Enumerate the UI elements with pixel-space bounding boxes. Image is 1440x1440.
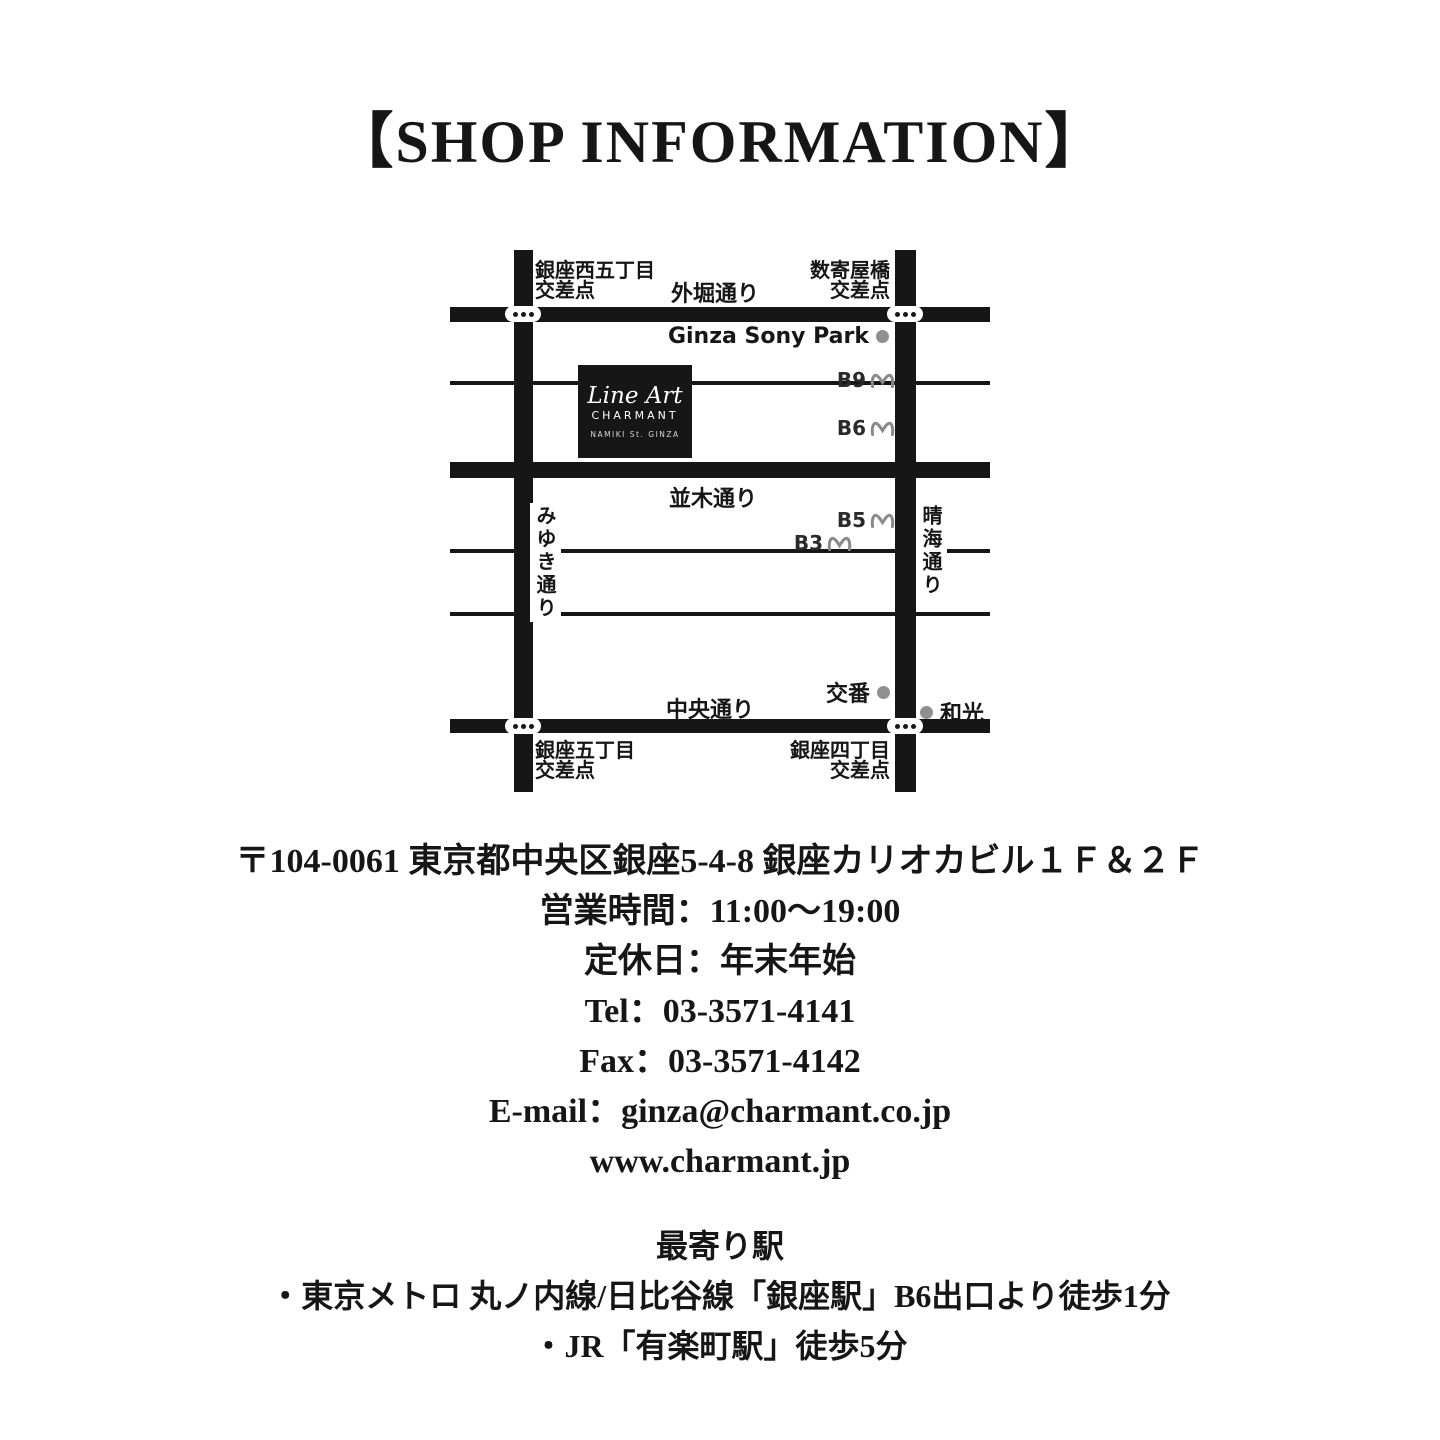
street-label-miyuki-dori: みゆき通り — [530, 503, 561, 622]
tokyo-metro-icon — [827, 535, 852, 551]
intersection-marker — [505, 718, 541, 734]
side-street-line — [450, 381, 990, 385]
nearest-stations-block: 最寄り駅 ・東京メトロ 丸ノ内線/日比谷線「銀座駅」B6出口より徒歩1分 ・JR… — [0, 1221, 1440, 1371]
landmark-ginza-sony-park: Ginza Sony Park — [668, 324, 889, 349]
brand-logo-name: CHARMANT — [591, 408, 678, 423]
map-dot-icon — [920, 706, 933, 719]
nearest-stations-heading: 最寄り駅 — [0, 1221, 1440, 1271]
metro-exit-b6: B6 — [837, 416, 895, 440]
shop-website: www.charmant.jp — [0, 1137, 1440, 1187]
street-label-namiki-dori: 並木通り — [628, 481, 798, 513]
shop-location-marker: Line Art CHARMANT NAMIKI St. GINZA — [578, 365, 692, 458]
intersection-label-sukiyabashi: 数寄屋橋 交差点 — [810, 260, 890, 300]
intersection-marker — [887, 306, 923, 322]
map-dot-icon — [876, 330, 889, 343]
shop-hours: 営業時間：11:00～19:00 — [0, 887, 1440, 937]
shop-fax: Fax：03-3571-4142 — [0, 1037, 1440, 1087]
brand-logo-sub: NAMIKI St. GINZA — [590, 430, 679, 439]
brand-logo-script: Line Art — [587, 384, 682, 408]
shop-info-block: 〒104-0061 東京都中央区銀座5-4-8 銀座カリオカビル１Ｆ＆２Ｆ 営業… — [0, 837, 1440, 1187]
station-access-metro: ・東京メトロ 丸ノ内線/日比谷線「銀座駅」B6出口より徒歩1分 — [0, 1271, 1440, 1321]
metro-exit-b3: B3 — [794, 531, 852, 555]
intersection-marker — [505, 306, 541, 322]
road-namiki-dori — [450, 462, 990, 478]
map-dot-icon — [877, 686, 890, 699]
page-title: 【SHOP INFORMATION】 — [0, 103, 1440, 181]
intersection-label-ginza-4chome: 銀座四丁目 交差点 — [790, 740, 890, 780]
road-harumi-dori — [895, 250, 916, 792]
shop-address: 〒104-0061 東京都中央区銀座5-4-8 銀座カリオカビル１Ｆ＆２Ｆ — [0, 837, 1440, 887]
street-label-harumi-dori: 晴海通り — [916, 503, 947, 599]
shop-information-page: 【SHOP INFORMATION】 銀座西五丁目 交差点 数寄屋橋 交差点 銀… — [0, 0, 1440, 1440]
landmark-koban: 交番 — [826, 676, 890, 708]
shop-email: E-mail：ginza@charmant.co.jp — [0, 1087, 1440, 1137]
street-label-sotobori-dori: 外堀通り — [630, 276, 800, 308]
street-label-chuo-dori: 中央通り — [625, 692, 795, 724]
shop-tel: Tel：03-3571-4141 — [0, 987, 1440, 1037]
station-access-jr: ・JR「有楽町駅」徒歩5分 — [0, 1321, 1440, 1371]
shop-holiday: 定休日：年末年始 — [0, 937, 1440, 987]
tokyo-metro-icon — [870, 420, 895, 436]
intersection-label-ginza-5chome: 銀座五丁目 交差点 — [535, 740, 635, 780]
tokyo-metro-icon — [870, 372, 895, 388]
ginza-access-map: 銀座西五丁目 交差点 数寄屋橋 交差点 銀座五丁目 交差点 銀座四丁目 交差点 … — [450, 250, 1010, 795]
metro-exit-b9: B9 — [837, 368, 895, 392]
tokyo-metro-icon — [870, 512, 895, 528]
intersection-marker — [887, 718, 923, 734]
metro-exit-b5: B5 — [837, 508, 895, 532]
landmark-wako: 和光 — [920, 696, 984, 728]
